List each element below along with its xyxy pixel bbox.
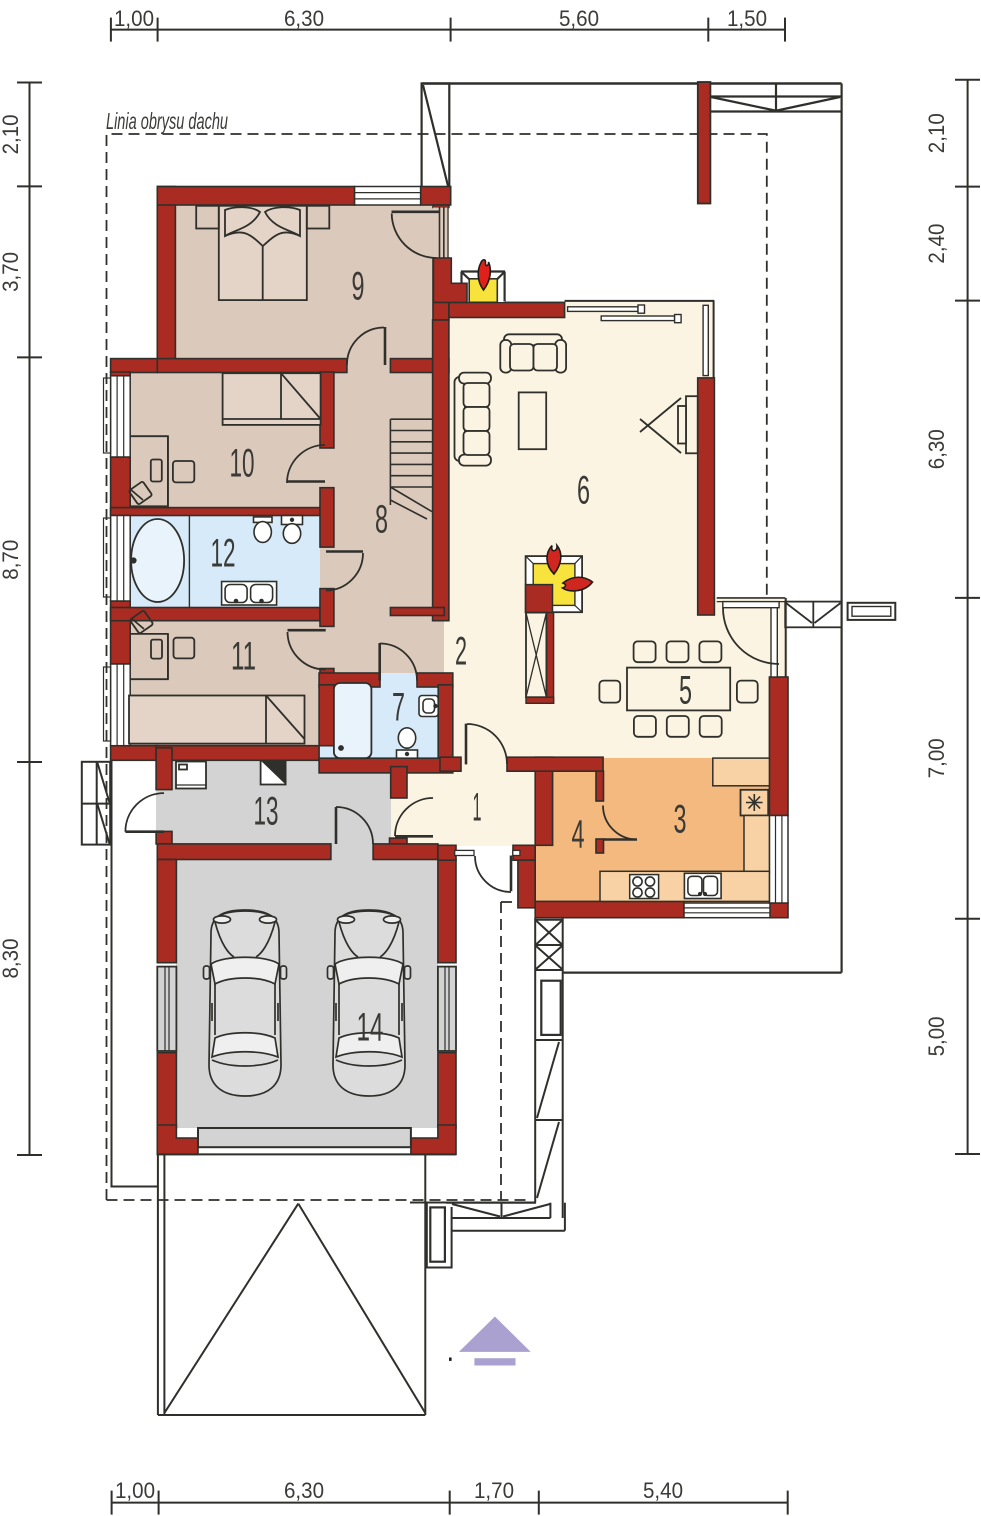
svg-text:2,40: 2,40: [924, 224, 949, 264]
svg-text:5,60: 5,60: [559, 6, 599, 31]
svg-text:3: 3: [674, 798, 687, 842]
svg-text:1: 1: [473, 786, 482, 830]
svg-text:2,10: 2,10: [0, 114, 23, 154]
svg-text:5: 5: [679, 669, 692, 713]
svg-text:5,40: 5,40: [643, 1478, 683, 1503]
svg-text:3,70: 3,70: [0, 252, 23, 292]
svg-text:5,00: 5,00: [924, 1016, 949, 1056]
svg-text:14: 14: [357, 1006, 384, 1050]
svg-text:6: 6: [577, 469, 590, 513]
svg-text:1,50: 1,50: [727, 6, 767, 31]
svg-text:8: 8: [375, 498, 388, 542]
svg-text:6,30: 6,30: [284, 6, 324, 31]
svg-text:13: 13: [254, 790, 279, 834]
svg-text:7: 7: [392, 686, 405, 730]
svg-text:1,00: 1,00: [114, 6, 154, 31]
svg-text:7,00: 7,00: [924, 738, 949, 778]
svg-text:10: 10: [230, 442, 255, 486]
svg-text:8,30: 8,30: [0, 939, 23, 979]
svg-text:2,10: 2,10: [924, 113, 949, 153]
svg-text:9: 9: [352, 265, 365, 309]
svg-text:8,70: 8,70: [0, 540, 23, 580]
svg-text:6,30: 6,30: [284, 1478, 324, 1503]
svg-text:12: 12: [211, 532, 236, 576]
svg-text:Linia obrysu dachu: Linia obrysu dachu: [106, 108, 228, 134]
svg-text:4: 4: [572, 813, 585, 857]
svg-text:6,30: 6,30: [924, 429, 949, 469]
svg-text:11: 11: [231, 635, 256, 679]
svg-text:1,00: 1,00: [115, 1478, 155, 1503]
svg-text:1,70: 1,70: [474, 1478, 514, 1503]
svg-text:2: 2: [455, 630, 467, 674]
